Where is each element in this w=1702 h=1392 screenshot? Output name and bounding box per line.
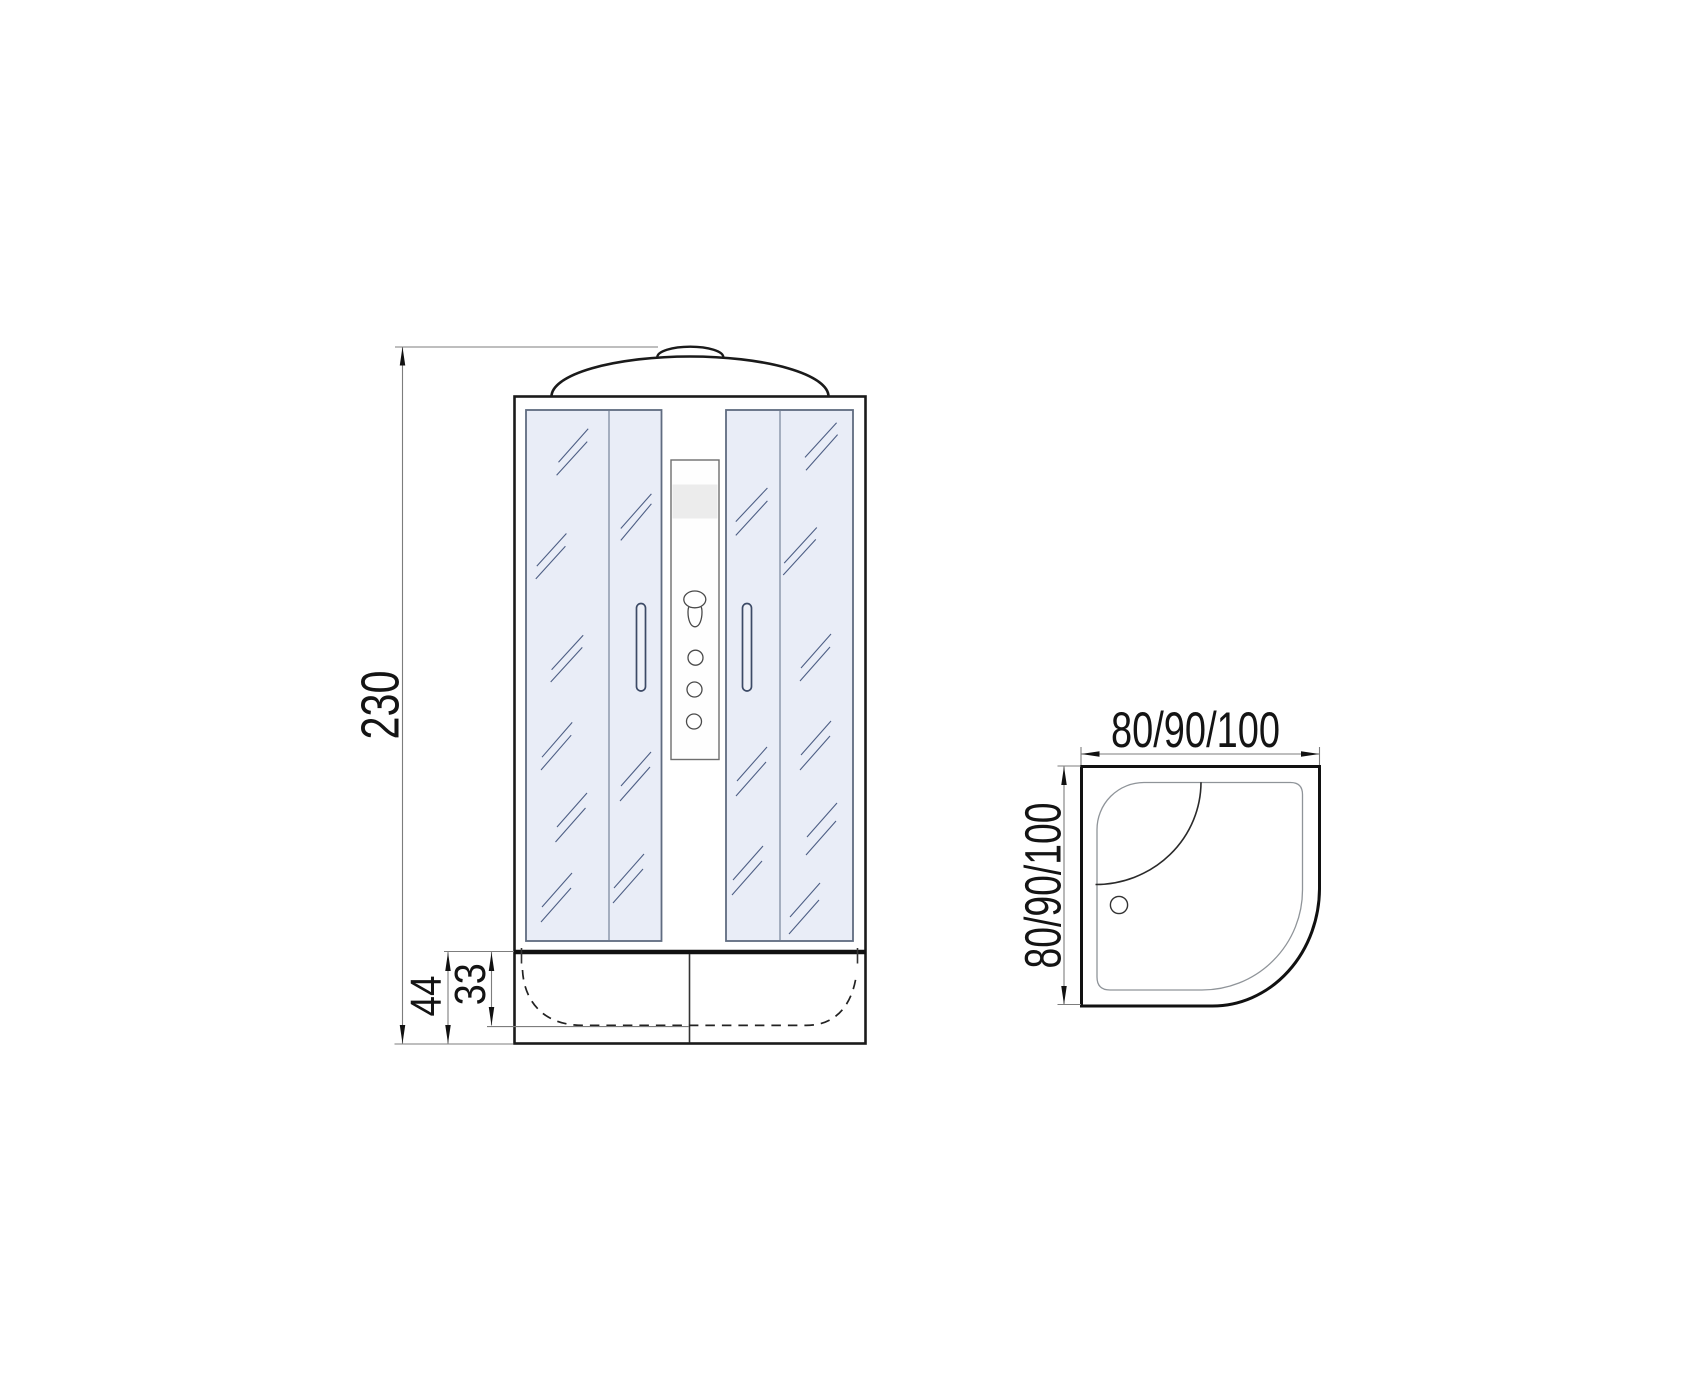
svg-text:44: 44 (402, 976, 451, 1017)
svg-text:33: 33 (446, 963, 495, 1005)
svg-text:80/90/100: 80/90/100 (1015, 803, 1072, 969)
svg-text:80/90/100: 80/90/100 (1111, 702, 1280, 758)
svg-text:230: 230 (351, 671, 411, 740)
